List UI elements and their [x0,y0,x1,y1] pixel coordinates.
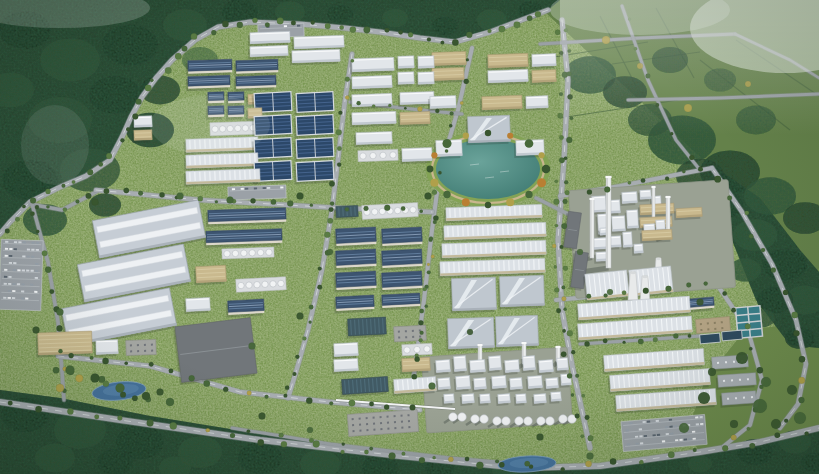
haze-overlay [0,0,819,474]
scene-svg [0,0,819,474]
aerial-industrial-park-render [0,0,819,474]
vignette [0,0,819,474]
